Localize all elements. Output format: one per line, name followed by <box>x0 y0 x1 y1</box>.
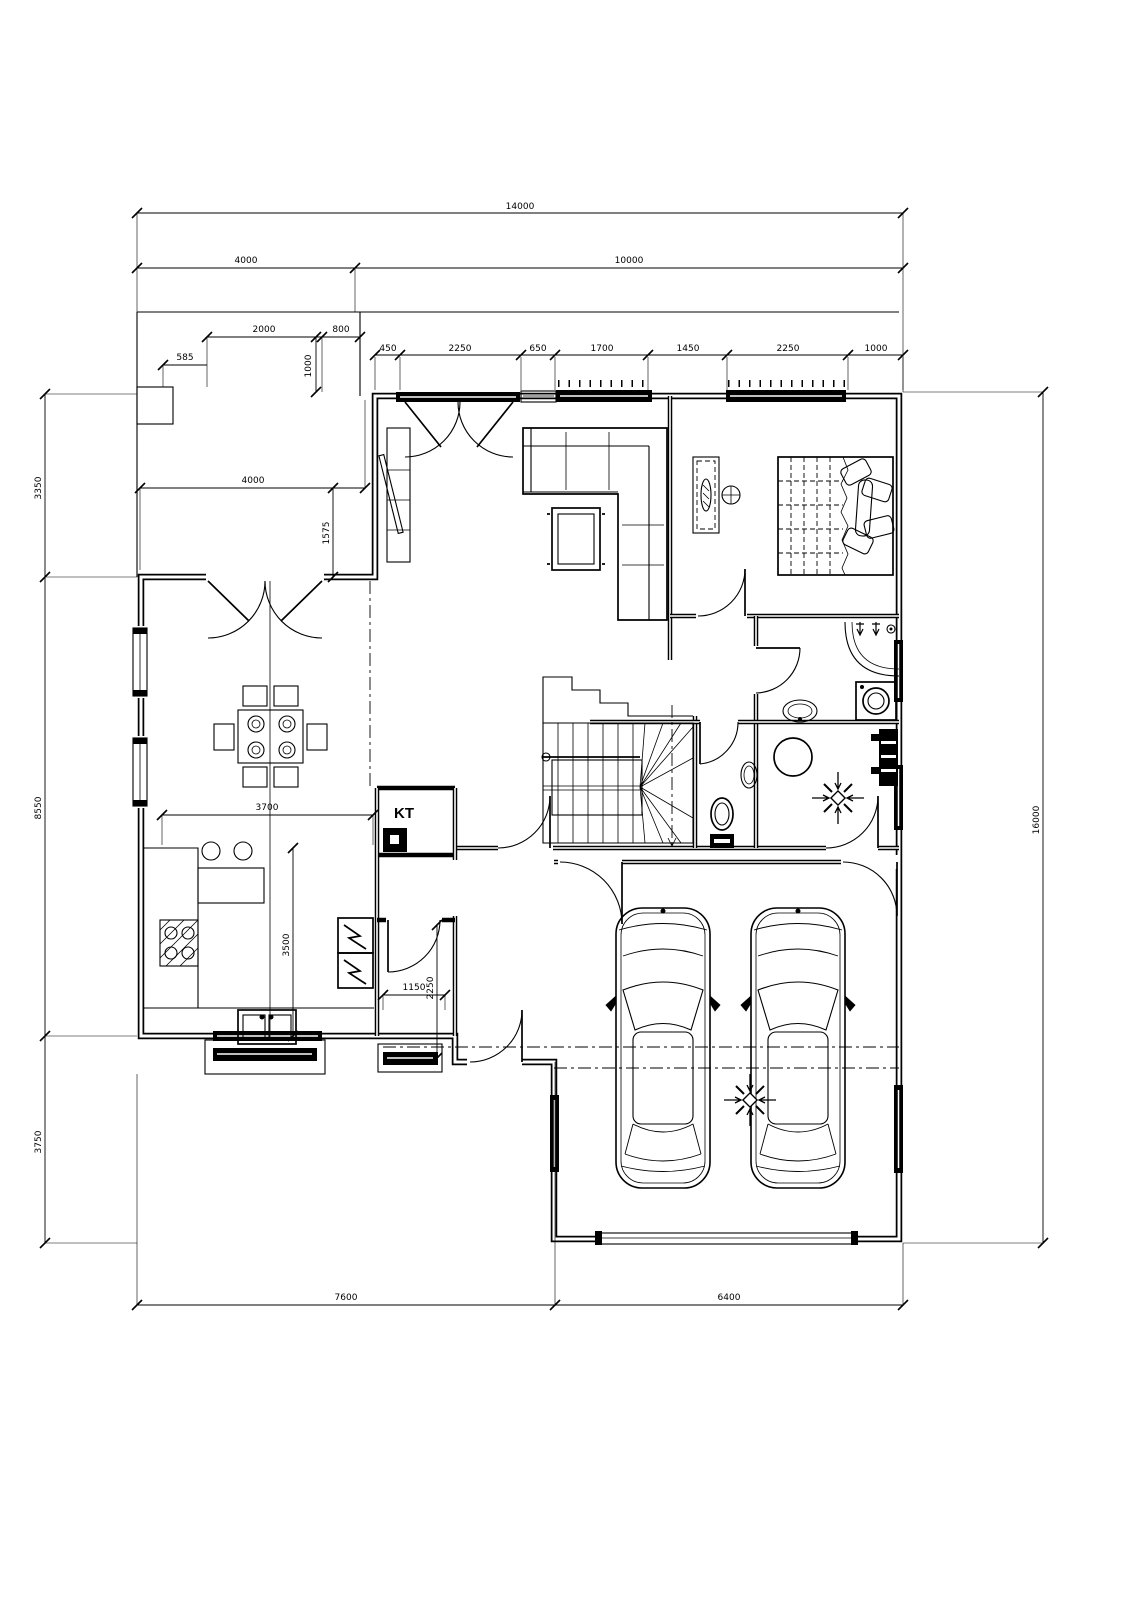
bar-stool <box>202 842 220 860</box>
car-left <box>606 908 720 1188</box>
cooktop <box>160 920 198 966</box>
floor-plan-canvas: 14000 4000 10000 2000 800 585 1000 4000 … <box>0 0 1131 1600</box>
bathtub-basin <box>774 738 812 776</box>
chair <box>274 767 298 787</box>
dim-corridor-depth: 2250 <box>426 976 436 999</box>
corridor-door <box>388 920 440 972</box>
dim-bottom-left: 7600 <box>335 1293 358 1303</box>
bedroom-furniture <box>693 457 895 575</box>
dim-window-row-5: 2250 <box>777 344 800 354</box>
garage-door-right <box>843 862 897 916</box>
dim-terrace-door: 2000 <box>253 325 276 335</box>
room-label-kt: KT <box>394 805 414 822</box>
bathroom-fixtures <box>710 622 899 848</box>
bathroom-door <box>826 796 878 848</box>
garage-door-left <box>560 862 622 924</box>
dressing-table <box>693 457 740 533</box>
dim-top-total: 14000 <box>506 202 535 212</box>
dim-terrace-return: 1000 <box>304 354 314 377</box>
dim-terrace-side: 800 <box>332 325 349 335</box>
dim-left-2: 3750 <box>34 1130 44 1153</box>
corner-sofa <box>523 428 667 620</box>
entry-stoop-radiator <box>378 1044 442 1072</box>
dim-terrace-offset: 585 <box>176 353 193 363</box>
kitchen-fixtures <box>144 842 374 1044</box>
tv-cabinet <box>379 428 410 562</box>
washing-machine <box>856 682 896 720</box>
door-openings <box>131 389 899 1247</box>
bar-stool <box>234 842 252 860</box>
fridge-freezer <box>338 918 373 988</box>
dim-left-0: 3350 <box>34 476 44 499</box>
living-room-furniture <box>379 428 667 620</box>
dim-window-row-4: 1450 <box>677 344 700 354</box>
axis-lines <box>270 581 899 1068</box>
bedroom-door <box>698 569 745 616</box>
doors <box>208 402 897 1062</box>
stool <box>722 486 740 504</box>
dim-window-row-6: 1000 <box>865 344 888 354</box>
shower <box>845 622 899 676</box>
stairs-door <box>498 796 550 848</box>
dim-left-1: 8550 <box>34 796 44 819</box>
dim-kitchen-width: 3700 <box>256 803 279 813</box>
dim-corridor-width: 1150 <box>403 983 426 993</box>
window-bedroom-north <box>726 384 846 403</box>
floor-drain-icon <box>812 772 864 824</box>
dim-window-row-2: 650 <box>529 344 546 354</box>
chimney-flue <box>390 835 399 844</box>
washbasin <box>783 700 817 722</box>
living-french-door <box>405 402 513 457</box>
window-garage-west <box>550 1095 559 1172</box>
kitchen-peninsula <box>198 868 264 903</box>
window-living-north <box>556 384 652 403</box>
garage <box>595 908 858 1245</box>
chair <box>274 686 298 706</box>
dim-kitchen-depth: 3500 <box>282 933 292 956</box>
pillows <box>839 457 894 555</box>
chair <box>243 686 267 706</box>
dim-window-row-1: 2250 <box>449 344 472 354</box>
chair <box>214 724 234 750</box>
exterior-walls <box>141 396 899 1239</box>
dim-right-total: 16000 <box>1032 805 1042 834</box>
chair <box>307 724 327 750</box>
chair <box>243 767 267 787</box>
stair-well <box>552 760 642 815</box>
coffee-table <box>547 508 605 570</box>
place-settings <box>248 716 295 758</box>
dim-bottom-right: 6400 <box>718 1293 741 1303</box>
car-right <box>741 908 855 1188</box>
towel-radiator <box>871 729 898 786</box>
dining-french-door <box>208 581 322 638</box>
terrace-column <box>137 387 173 424</box>
dim-top-left: 4000 <box>235 256 258 266</box>
double-bed <box>778 457 895 575</box>
window-garage-east <box>894 1085 903 1173</box>
porch-step <box>205 1040 325 1074</box>
dim-terrace-depth: 1575 <box>322 522 332 545</box>
staircase <box>542 677 693 846</box>
dim-window-row-0: 450 <box>379 344 396 354</box>
dim-terrace-width: 4000 <box>242 476 265 486</box>
floor-plan-page: 14000 4000 10000 2000 800 585 1000 4000 … <box>0 0 1131 1600</box>
toilet <box>710 798 734 848</box>
dim-top-right: 10000 <box>615 256 644 266</box>
dim-window-row-3: 1700 <box>591 344 614 354</box>
dining-furniture <box>214 686 327 787</box>
